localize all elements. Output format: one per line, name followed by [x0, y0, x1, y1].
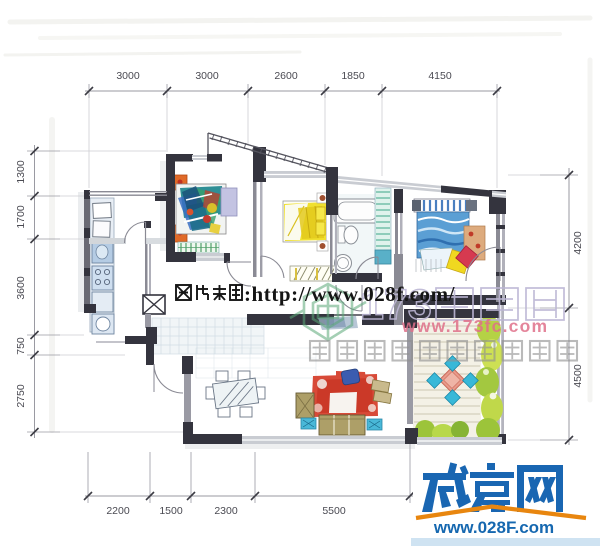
svg-text:1300: 1300 [15, 160, 27, 184]
svg-text:5500: 5500 [322, 505, 346, 517]
svg-text:2200: 2200 [106, 505, 130, 517]
svg-text:4150: 4150 [428, 70, 452, 82]
svg-text:2600: 2600 [274, 70, 298, 82]
svg-text:1700: 1700 [15, 205, 27, 229]
svg-text::http://www.028f.com/: :http://www.028f.com/ [244, 282, 456, 306]
svg-text:4200: 4200 [572, 231, 584, 255]
svg-text:750: 750 [15, 337, 27, 355]
svg-text:2300: 2300 [214, 505, 238, 517]
svg-text:3600: 3600 [15, 276, 27, 300]
svg-text:www.173fc.com: www.173fc.com [401, 316, 548, 336]
svg-text:3000: 3000 [195, 70, 219, 82]
svg-text:1850: 1850 [341, 70, 365, 82]
svg-text:1500: 1500 [159, 505, 183, 517]
svg-text:4500: 4500 [572, 364, 584, 388]
svg-text:2750: 2750 [15, 384, 27, 408]
svg-text:3000: 3000 [116, 70, 140, 82]
svg-text:www.028F.com: www.028F.com [433, 518, 554, 537]
